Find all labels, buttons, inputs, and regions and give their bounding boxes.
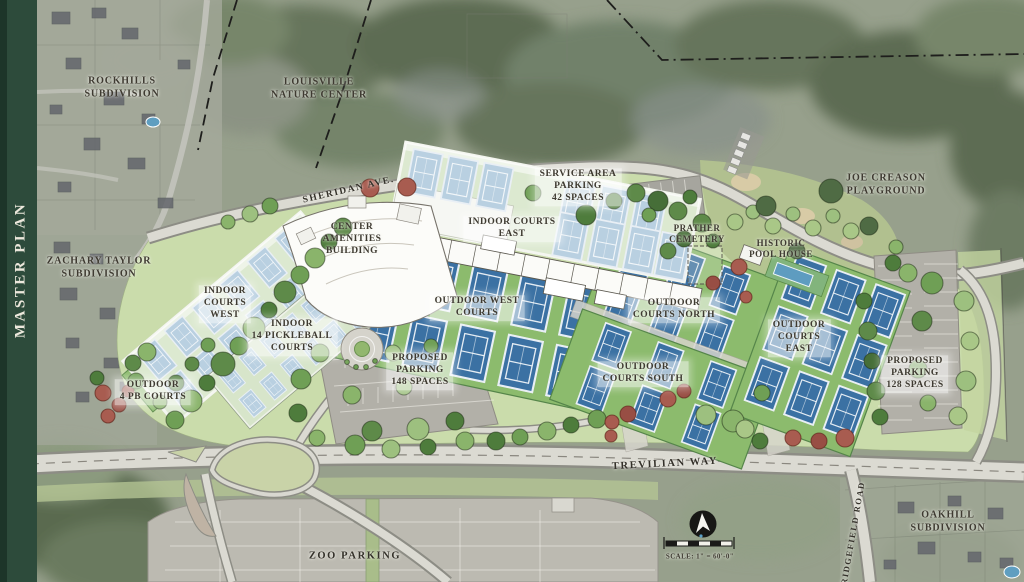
swimming-pool (1004, 566, 1020, 578)
dropoff-circle (341, 328, 383, 370)
north-arrow-icon (690, 511, 717, 538)
master-plan-page: ROCKHILLS SUBDIVISION LOUISVILLE NATURE … (0, 0, 1024, 582)
sidebar: MASTER PLAN (0, 0, 37, 582)
swimming-pool (146, 117, 160, 127)
master-plan-map (0, 0, 1024, 582)
page-title: MASTER PLAN (13, 202, 30, 338)
